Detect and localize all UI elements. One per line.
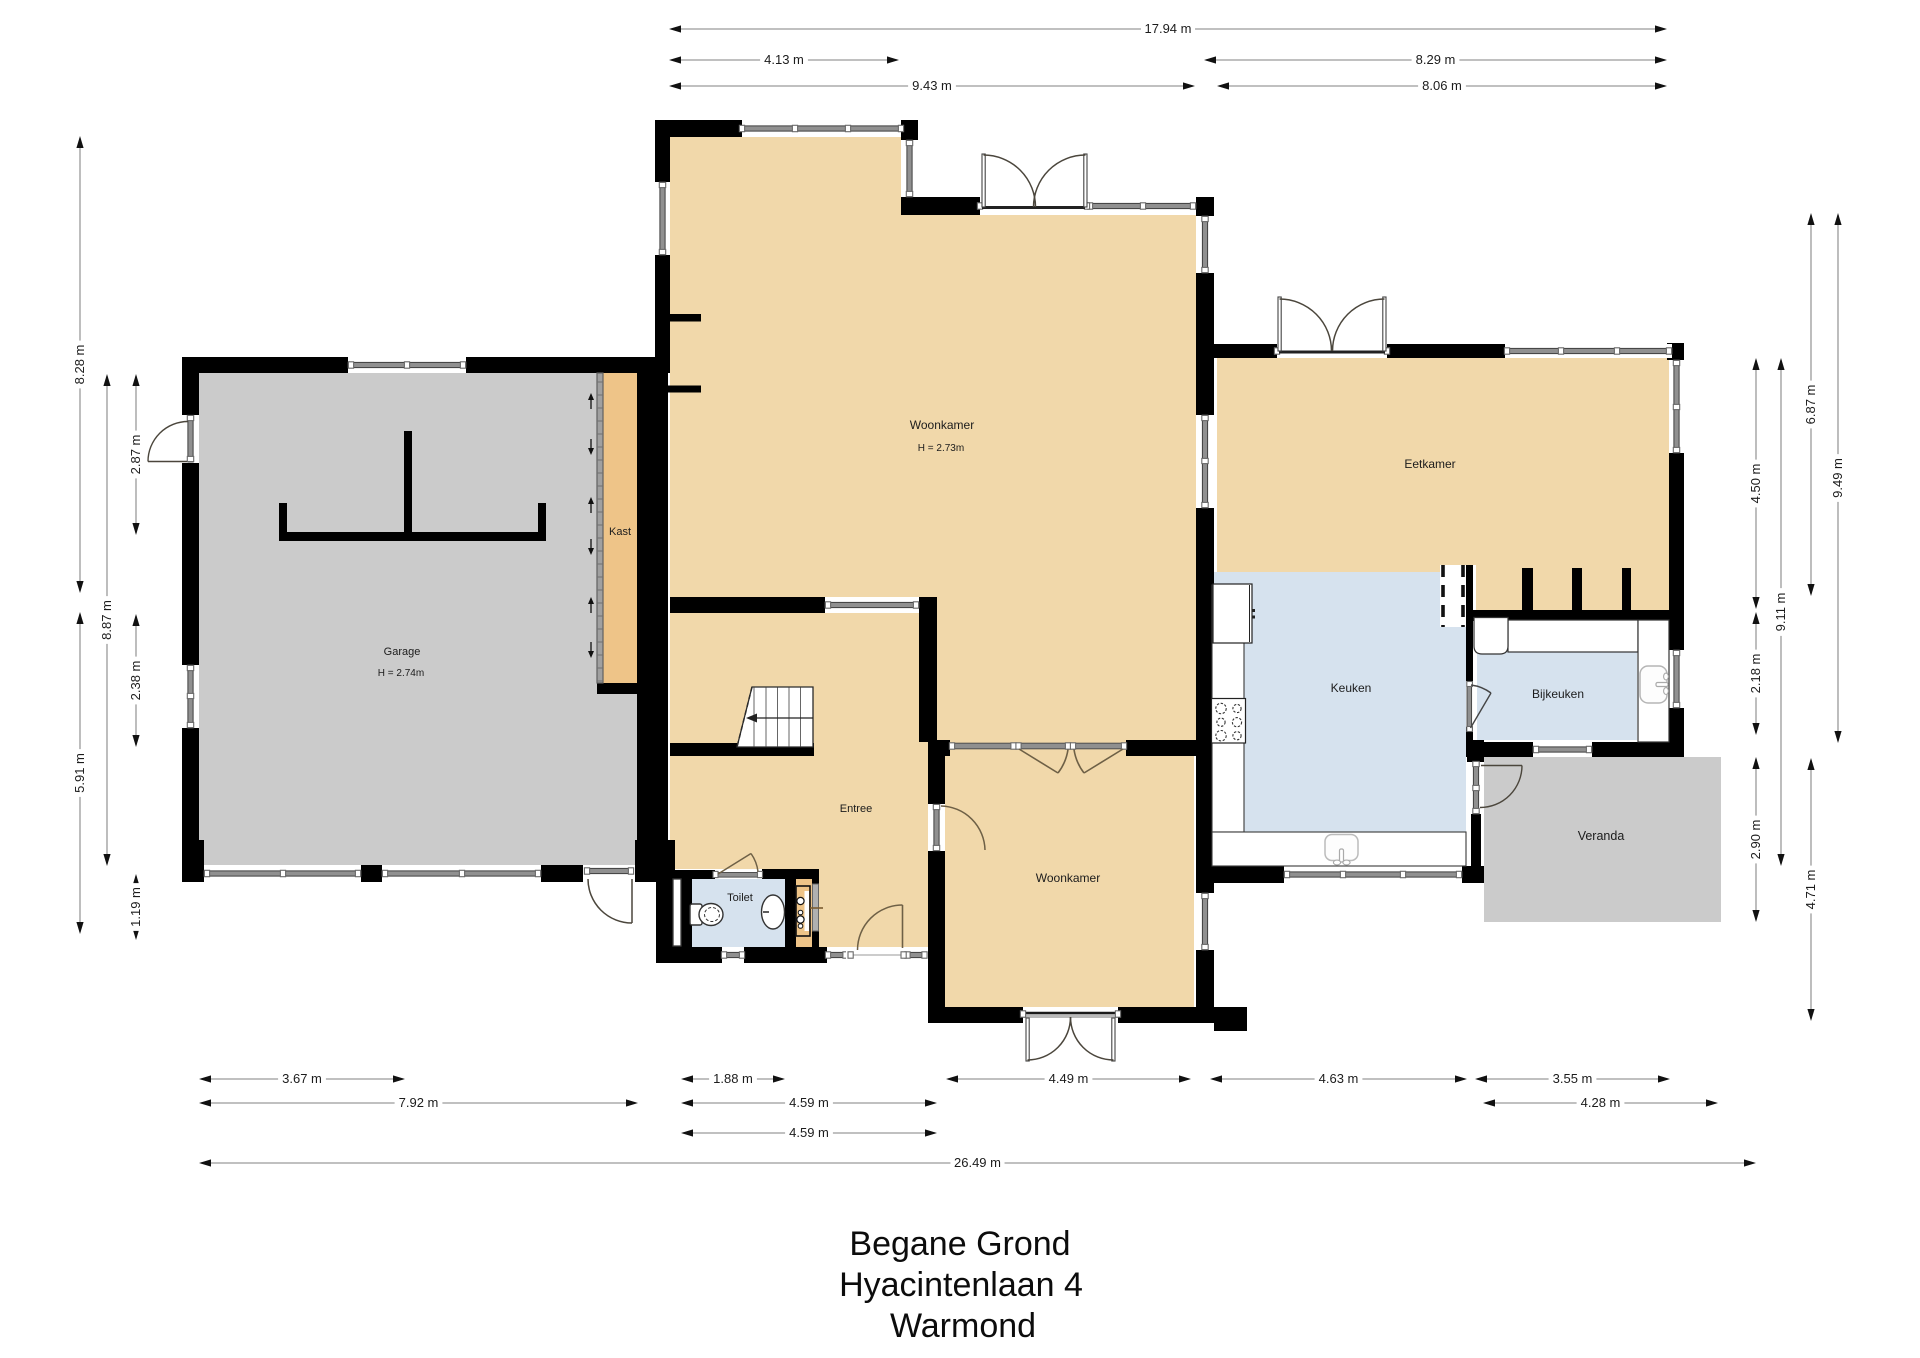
- svg-text:3.55 m: 3.55 m: [1553, 1071, 1593, 1086]
- svg-text:1.88 m: 1.88 m: [713, 1071, 753, 1086]
- svg-text:H = 2.73m: H = 2.73m: [918, 443, 964, 454]
- svg-text:9.11 m: 9.11 m: [1773, 593, 1788, 632]
- svg-text:9.43 m: 9.43 m: [912, 78, 952, 93]
- svg-text:2.38 m: 2.38 m: [128, 661, 143, 701]
- svg-text:H = 2.74m: H = 2.74m: [378, 668, 424, 679]
- svg-text:Hyacintenlaan 4: Hyacintenlaan 4: [839, 1266, 1083, 1304]
- svg-text:4.59 m: 4.59 m: [789, 1125, 829, 1140]
- svg-text:26.49 m: 26.49 m: [954, 1155, 1001, 1170]
- svg-text:4.49 m: 4.49 m: [1049, 1071, 1089, 1086]
- svg-text:8.87 m: 8.87 m: [99, 600, 114, 640]
- svg-text:8.28 m: 8.28 m: [72, 345, 87, 385]
- svg-text:4.71 m: 4.71 m: [1803, 870, 1818, 910]
- svg-text:2.18 m: 2.18 m: [1748, 654, 1763, 694]
- svg-text:Eetkamer: Eetkamer: [1404, 457, 1455, 471]
- svg-text:1.19 m: 1.19 m: [128, 887, 143, 927]
- svg-text:Woonkamer: Woonkamer: [1036, 871, 1100, 885]
- svg-text:4.28 m: 4.28 m: [1581, 1095, 1621, 1110]
- svg-text:2.87 m: 2.87 m: [128, 435, 143, 475]
- svg-text:5.91 m: 5.91 m: [72, 753, 87, 793]
- svg-text:Woonkamer: Woonkamer: [910, 418, 974, 432]
- svg-text:3.67 m: 3.67 m: [282, 1071, 322, 1086]
- svg-text:4.13 m: 4.13 m: [764, 52, 804, 67]
- svg-text:4.63 m: 4.63 m: [1319, 1071, 1359, 1086]
- svg-text:Keuken: Keuken: [1331, 681, 1372, 695]
- svg-text:Warmond: Warmond: [890, 1307, 1036, 1345]
- svg-text:Kast: Kast: [609, 526, 631, 538]
- svg-text:Toilet: Toilet: [727, 892, 753, 904]
- svg-text:4.59 m: 4.59 m: [789, 1095, 829, 1110]
- svg-text:Entree: Entree: [840, 803, 872, 815]
- svg-text:Garage: Garage: [384, 646, 421, 658]
- svg-text:4.50 m: 4.50 m: [1748, 464, 1763, 504]
- svg-text:9.49 m: 9.49 m: [1830, 458, 1845, 498]
- svg-text:Begane Grond: Begane Grond: [849, 1225, 1070, 1263]
- svg-text:7.92 m: 7.92 m: [399, 1095, 439, 1110]
- svg-text:17.94 m: 17.94 m: [1145, 21, 1192, 36]
- svg-text:8.06 m: 8.06 m: [1422, 78, 1462, 93]
- svg-text:Bijkeuken: Bijkeuken: [1532, 687, 1584, 701]
- svg-text:6.87 m: 6.87 m: [1803, 385, 1818, 425]
- svg-text:8.29 m: 8.29 m: [1416, 52, 1456, 67]
- svg-text:2.90 m: 2.90 m: [1748, 820, 1763, 860]
- svg-text:Veranda: Veranda: [1578, 829, 1625, 843]
